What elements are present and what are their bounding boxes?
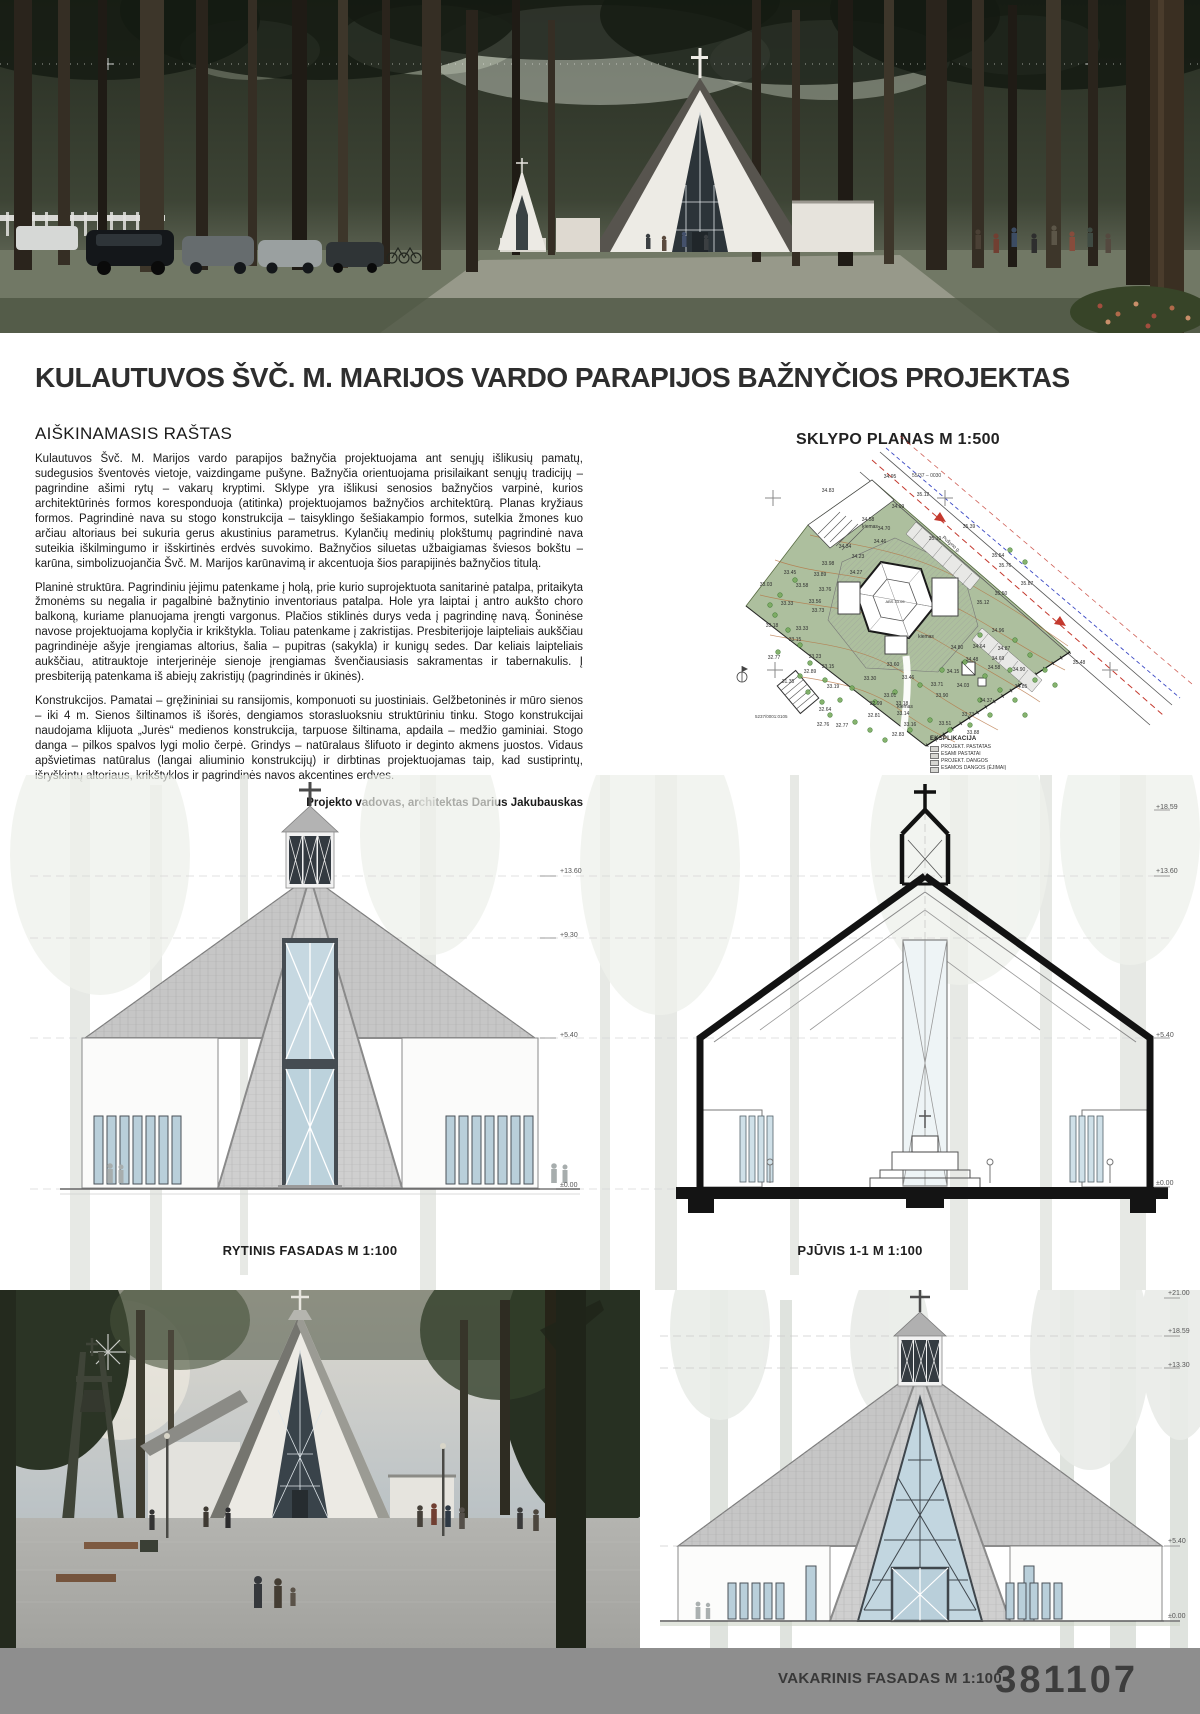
elevation-label: 33.15 xyxy=(789,637,802,643)
elevation-label: 33.33 xyxy=(781,601,794,607)
paragraph-3: Konstrukcijos. Pamatai – gręžininiai su … xyxy=(35,694,583,784)
elevation-label: 33.76 xyxy=(819,587,832,593)
east-facade-label: RYTINIS FASADAS M 1:100 xyxy=(160,1243,460,1258)
legend-item: PROJEKT. PASTATAS xyxy=(930,744,1060,751)
elevation-label: 34.27 xyxy=(850,570,863,576)
elevation-label: 33.16 xyxy=(904,722,917,728)
elevation-label: 33.73 xyxy=(962,712,975,718)
elevation-label: 34.70 xyxy=(878,526,891,532)
elevation-label: 33.18 xyxy=(766,623,779,629)
elevation-label: 34.85 xyxy=(1015,684,1028,690)
elevation-label: 34.69 xyxy=(992,656,1005,662)
elevation-label: 33.73 xyxy=(812,608,825,614)
elevation-label: 34.46 xyxy=(874,539,887,545)
plan-legend: EKSPLIKACIJA PROJEKT. PASTATASESAMI PAST… xyxy=(930,736,1060,772)
level-mark: ±0.00 xyxy=(1156,1180,1173,1187)
presentation-board: KULAUTUVOS ŠVČ. M. MARIJOS VARDO PARAPIJ… xyxy=(0,0,1200,1714)
level-mark: ±0.00 xyxy=(560,1182,577,1189)
sheet-number: 381107 xyxy=(995,1659,1138,1702)
elevation-label: 33.98 xyxy=(822,561,835,567)
level-mark: +21.00 xyxy=(1168,1290,1190,1297)
level-mark: +13.60 xyxy=(1156,868,1178,875)
elevation-label: 34.64 xyxy=(973,644,986,650)
level-mark: +13.30 xyxy=(1168,1362,1190,1369)
elevation-label: 34.34 xyxy=(839,544,852,550)
elevation-label: 34.15 xyxy=(947,669,960,675)
elevation-label: 32.99 xyxy=(870,701,883,707)
elevation-label: 33.58 xyxy=(796,583,809,589)
elevation-label: kiemas xyxy=(918,634,934,640)
elevation-label: 32.83 xyxy=(892,732,905,738)
elevation-label: 34.83 xyxy=(822,488,835,494)
elevation-label: 33.33 xyxy=(796,626,809,632)
west-rendering xyxy=(0,1290,640,1648)
legend-item: PROJEKT. DANGOS xyxy=(930,758,1060,765)
elevation-label: 35.10 xyxy=(929,536,942,542)
legend-heading: EKSPLIKACIJA xyxy=(930,736,1060,742)
footer-bar: VAKARINIS FASADAS M 1:100 381107 xyxy=(0,1648,1200,1714)
elevation-label: 35.87 xyxy=(1021,581,1034,587)
section-panel: +18.59+13.60+5.40±0.00 xyxy=(640,780,1200,1260)
elevation-label: 33.14 xyxy=(897,711,910,717)
elevation-label: 34.80 xyxy=(951,645,964,651)
elevation-label: 34.96 xyxy=(992,628,1005,634)
elevation-label: 35.12 xyxy=(917,492,930,498)
level-mark: +18.59 xyxy=(1156,804,1178,811)
legend-items: PROJEKT. PASTATASESAMI PASTATAIPROJEKT. … xyxy=(930,744,1060,772)
elevation-label: 32.64 xyxy=(819,707,832,713)
section-drawing xyxy=(640,780,1200,1260)
site-plan: 55/37 – 0030 Pušyno g. 5237/0001:0105 AB… xyxy=(680,430,1200,775)
elevation-label: 33.03 xyxy=(760,582,773,588)
elevation-label: 33.71 xyxy=(931,682,944,688)
elevation-label: 33.46 xyxy=(902,675,915,681)
elevation-label: 35.48 xyxy=(1073,660,1086,666)
explanatory-heading: AIŠKINAMASIS RAŠTAS xyxy=(35,424,583,444)
elevation-label: 33.30 xyxy=(864,676,877,682)
elevation-label: 35.76 xyxy=(999,563,1012,569)
elevation-labels-layer: 34.9534.8335.1234.9934.5834.7035.3934.46… xyxy=(680,430,1200,775)
elevation-label: 33.90 xyxy=(936,693,949,699)
west-facade-panel: +21.00+18.59+13.30+5.40±0.00 xyxy=(640,1290,1200,1648)
hero-rendering xyxy=(0,0,1200,333)
level-mark: +5.40 xyxy=(1156,1032,1174,1039)
elevation-label: 32.77 xyxy=(836,723,849,729)
elevation-label: 35.39 xyxy=(963,524,976,530)
elevation-label: 34.90 xyxy=(1013,667,1026,673)
west-facade-drawing xyxy=(640,1290,1200,1648)
paragraph-1: Kulautuvos Švč. M. Marijos vardo parapij… xyxy=(35,452,583,572)
elevation-drawings: +13.60+9.30+5.40±0.00 xyxy=(0,775,1200,1290)
elevation-label: 34.03 xyxy=(957,683,970,689)
elevation-label: 33.45 xyxy=(784,570,797,576)
east-facade-panel: +13.60+9.30+5.40±0.00 xyxy=(20,780,620,1260)
elevation-label: 34.23 xyxy=(852,554,865,560)
elevation-label: 33.51 xyxy=(939,721,952,727)
page-title: KULAUTUVOS ŠVČ. M. MARIJOS VARDO PARAPIJ… xyxy=(35,362,1175,394)
elevation-label: 33.56 xyxy=(809,599,822,605)
elevation-label: 34.99 xyxy=(892,504,905,510)
elevation-label: 35.54 xyxy=(992,553,1005,559)
panorama-scene xyxy=(0,0,1200,333)
elevation-label: 32.77 xyxy=(768,655,781,661)
elevation-label: 34.58 xyxy=(862,517,875,523)
elevation-label: 31.35 xyxy=(782,679,795,685)
elevation-label: 33.19 xyxy=(827,684,840,690)
elevation-label: 33.89 xyxy=(814,572,827,578)
elevation-label: 32.81 xyxy=(868,713,881,719)
elevation-label: 35.12 xyxy=(977,600,990,606)
elevation-label: 34.87 xyxy=(998,646,1011,652)
elevation-label: 32.76 xyxy=(817,722,830,728)
elevation-label: 34.37 xyxy=(980,698,993,704)
explanatory-text: AIŠKINAMASIS RAŠTAS Kulautuvos Švč. M. M… xyxy=(35,424,583,820)
level-mark: +5.40 xyxy=(560,1032,578,1039)
bottom-row: +21.00+18.59+13.30+5.40±0.00 xyxy=(0,1290,1200,1648)
level-mark: +13.60 xyxy=(560,868,582,875)
elevation-label: 34.48 xyxy=(966,657,979,663)
level-mark: +18.59 xyxy=(1168,1328,1190,1335)
level-mark: +5.40 xyxy=(1168,1538,1186,1545)
section-label: PJŪVIS 1-1 M 1:100 xyxy=(710,1243,1010,1258)
elevation-label: 33.01 xyxy=(884,693,897,699)
east-facade-drawing xyxy=(20,780,620,1260)
legend-item: ESAMOS DANGOS (ĖJIMAI) xyxy=(930,765,1060,772)
elevation-label: 33.23 xyxy=(809,654,822,660)
elevation-label: 34.58 xyxy=(988,665,1001,671)
elevation-label: 35.50 xyxy=(995,591,1008,597)
elevation-label: 33.60 xyxy=(887,662,900,668)
level-mark: ±0.00 xyxy=(1168,1613,1185,1620)
west-rendering-scene xyxy=(0,1290,640,1648)
elevation-label: 34.95 xyxy=(884,474,897,480)
elevation-label: 33.15 xyxy=(822,664,835,670)
elevation-label: kiemas xyxy=(897,704,913,710)
level-mark: +9.30 xyxy=(560,932,578,939)
elevation-label: kiemas xyxy=(862,524,878,530)
elevation-label: 32.89 xyxy=(804,669,817,675)
legend-item: ESAMI PASTATAI xyxy=(930,751,1060,758)
paragraph-2: Planinė struktūra. Pagrindiniu įėjimu pa… xyxy=(35,581,583,686)
